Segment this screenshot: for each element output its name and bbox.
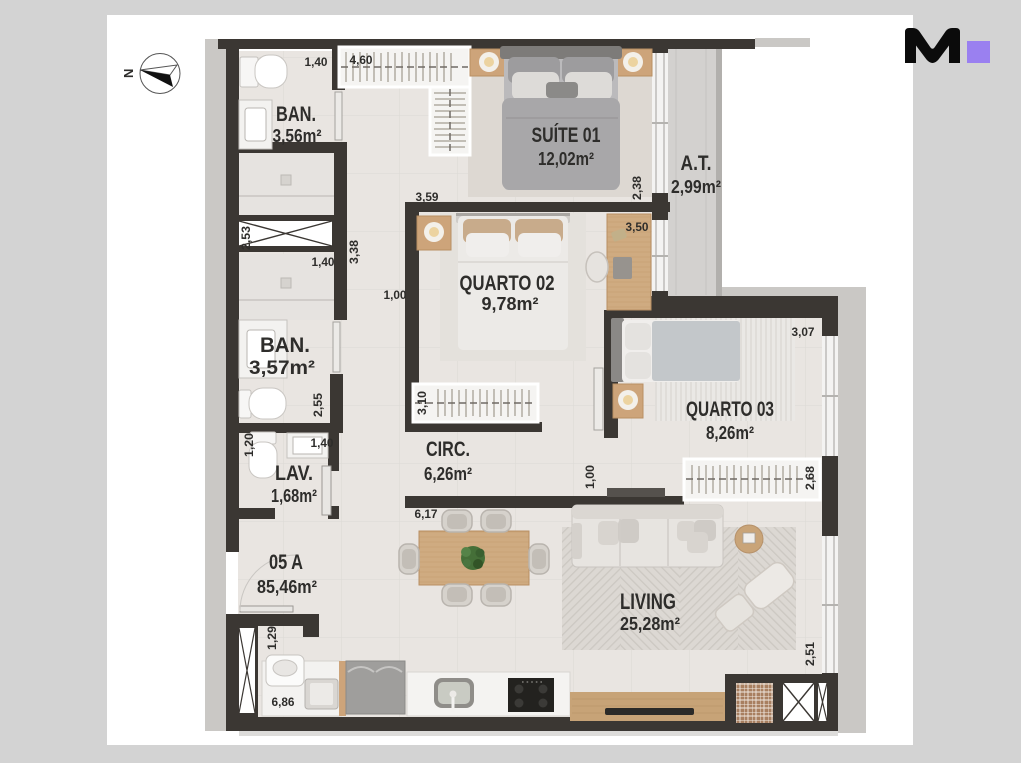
svg-text:SUÍTE 01: SUÍTE 01 — [532, 124, 601, 147]
svg-text:9,78m²: 9,78m² — [482, 294, 539, 314]
svg-text:3,57m²: 3,57m² — [249, 358, 315, 379]
svg-text:6,17: 6,17 — [415, 509, 438, 521]
svg-text:1,68m²: 1,68m² — [271, 486, 317, 506]
svg-text:QUARTO 02: QUARTO 02 — [460, 272, 555, 295]
svg-text:3,50: 3,50 — [626, 222, 649, 234]
svg-text:3,38: 3,38 — [349, 239, 361, 264]
svg-text:1,00: 1,00 — [585, 465, 597, 489]
svg-text:BAN.: BAN. — [276, 103, 316, 126]
svg-text:3,56m²: 3,56m² — [273, 126, 322, 146]
svg-text:2,51: 2,51 — [805, 641, 817, 666]
svg-text:05 A: 05 A — [269, 551, 303, 574]
svg-text:85,46m²: 85,46m² — [257, 577, 317, 597]
svg-text:8,26m²: 8,26m² — [706, 423, 754, 443]
svg-text:1,40: 1,40 — [311, 438, 334, 450]
svg-text:1,40: 1,40 — [312, 257, 335, 269]
svg-text:1,00: 1,00 — [384, 290, 407, 302]
svg-text:2,99m²: 2,99m² — [671, 177, 721, 197]
svg-text:2,53: 2,53 — [241, 226, 253, 250]
svg-text:CIRC.: CIRC. — [426, 438, 470, 461]
svg-text:25,28m²: 25,28m² — [620, 614, 680, 634]
svg-text:1,29: 1,29 — [267, 626, 279, 650]
svg-text:QUARTO 03: QUARTO 03 — [686, 398, 774, 421]
svg-text:6,86: 6,86 — [272, 697, 295, 709]
svg-text:N: N — [121, 69, 136, 78]
svg-text:12,02m²: 12,02m² — [538, 149, 594, 169]
svg-text:BAN.: BAN. — [260, 334, 310, 357]
svg-text:LAV.: LAV. — [275, 462, 313, 485]
svg-text:1,20: 1,20 — [244, 433, 256, 457]
svg-text:A.T.: A.T. — [681, 152, 712, 175]
svg-text:LIVING: LIVING — [620, 589, 676, 614]
svg-text:1,40: 1,40 — [305, 57, 328, 69]
svg-text:2,38: 2,38 — [632, 175, 644, 200]
svg-text:3,59: 3,59 — [416, 192, 439, 204]
svg-text:3,10: 3,10 — [417, 391, 429, 415]
svg-text:2,55: 2,55 — [313, 392, 325, 417]
svg-text:2,68: 2,68 — [805, 465, 817, 490]
svg-text:3,07: 3,07 — [792, 327, 815, 339]
svg-text:6,26m²: 6,26m² — [424, 464, 472, 484]
svg-text:4,60: 4,60 — [350, 55, 373, 67]
